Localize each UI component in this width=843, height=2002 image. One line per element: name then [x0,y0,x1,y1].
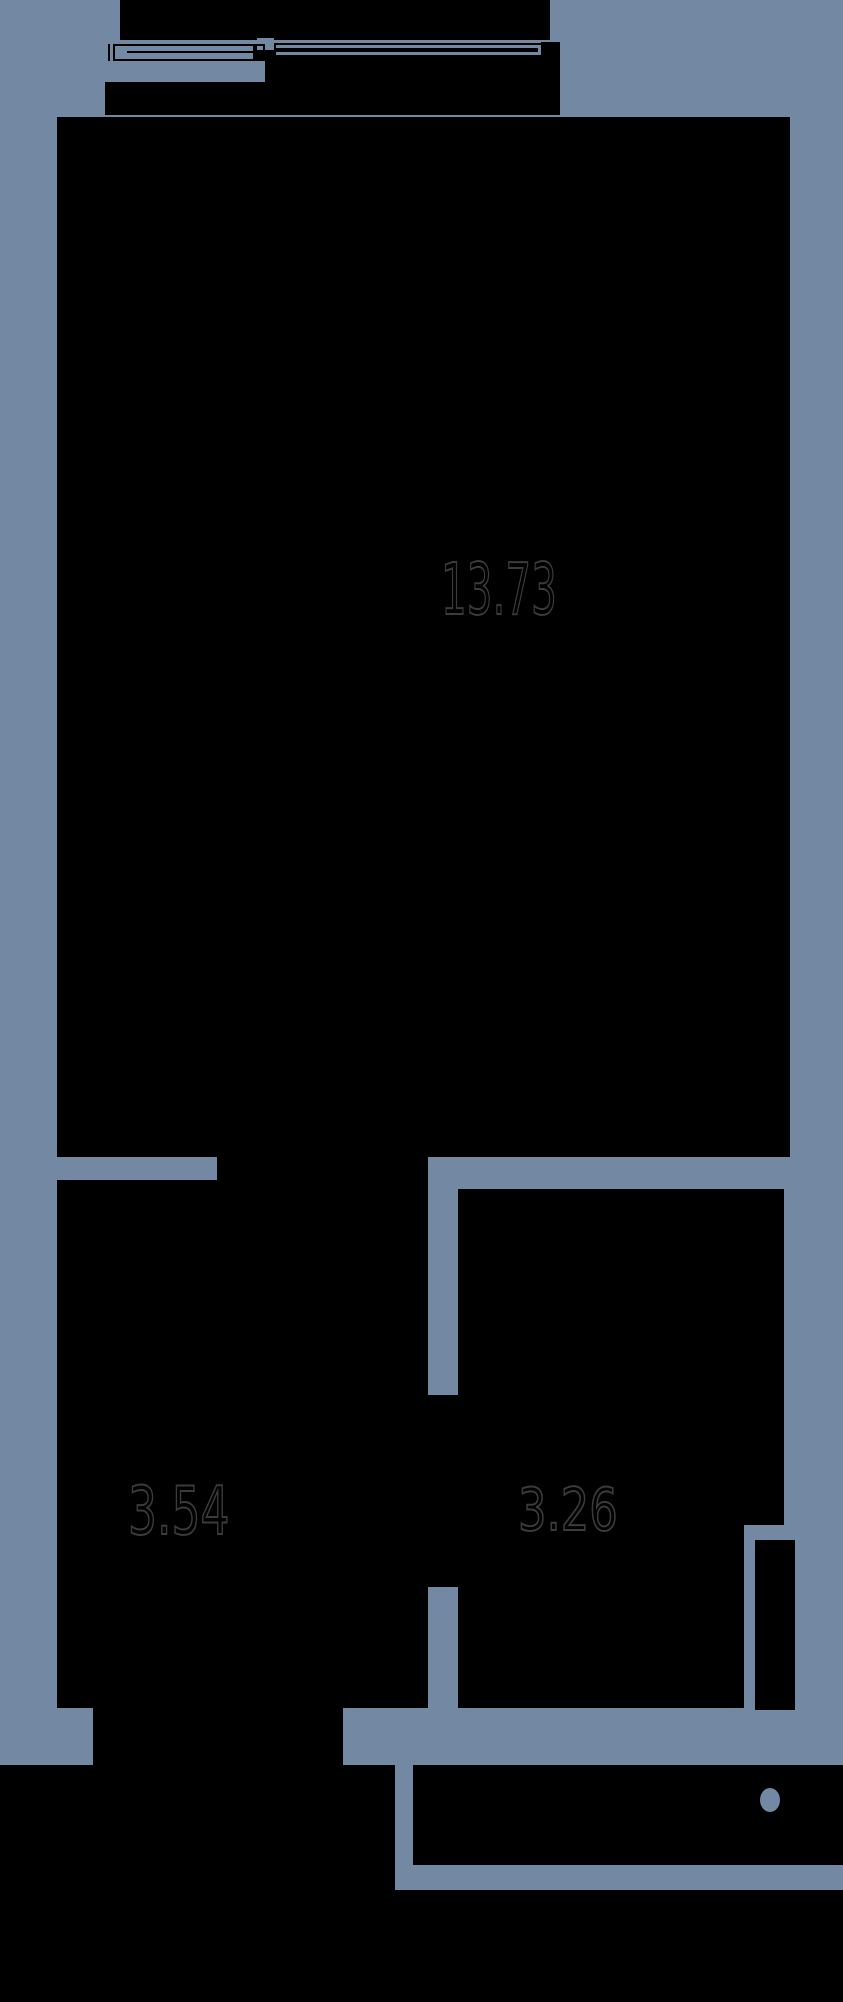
area-label-main: 13.73 [441,554,557,625]
main-room-fill [57,117,790,1157]
bottom-wall-strip [0,1890,843,2002]
window-glass-line-upper [276,45,540,48]
window-sill-block [265,55,548,82]
fixture-circle [760,1788,780,1812]
area-label-left: 3.54 [128,1478,229,1545]
area-label-right: 3.26 [518,1480,618,1539]
room-right-fill [458,1189,784,1525]
divider-door-opening [428,1398,458,1586]
window-left-sash-frame [113,44,265,61]
bath-fill [413,1765,843,1865]
window-glass-line-end [538,45,541,55]
window-left-jamb-line [108,44,110,61]
opening-left-to-hall [93,1708,343,1765]
window-glass-line-lower [276,52,540,55]
floor-plan: 13.733.543.26 [0,0,843,2002]
right-door-leaf [755,1540,795,1710]
opening-main-to-left [217,1157,428,1182]
balcony-floor [105,82,560,115]
room-left-fill [57,1180,428,1708]
balcony-parapet [120,0,550,40]
room-right-fill-lower [458,1525,744,1708]
divider-jamb-bottom [426,1583,460,1587]
divider-jamb-top [426,1395,460,1399]
